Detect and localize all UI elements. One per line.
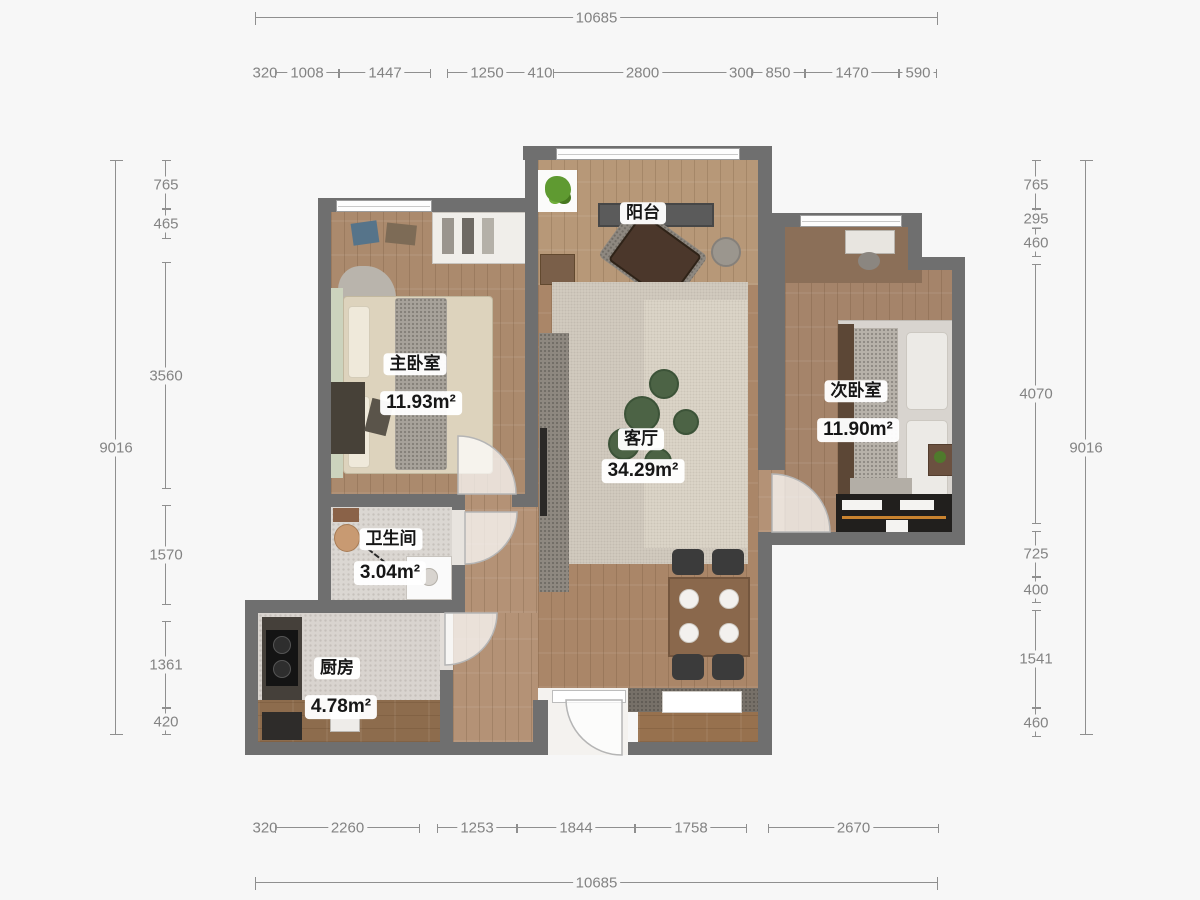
dim-top-segments-value: 1470 xyxy=(832,65,871,82)
master-bedroom-door-arc xyxy=(458,436,516,494)
dim-top-segments-line: 1008 xyxy=(275,72,339,73)
dim-top-segments-tick xyxy=(339,69,340,78)
dim-top-segments-tick xyxy=(447,69,448,78)
dim-left-segments-tick xyxy=(162,262,171,263)
dim-right-segments-tick xyxy=(1032,264,1041,265)
kitchen-door-arc xyxy=(445,613,497,665)
dim-left-segments-value: 1570 xyxy=(146,547,185,564)
kitchen-area: 4.78m² xyxy=(305,695,377,719)
second-bedroom-area: 11.90m² xyxy=(817,418,899,442)
dim-left-segments-line: 465 xyxy=(165,209,166,239)
dim-bottom-segments-tick xyxy=(275,824,276,833)
dim-right-segments-tick xyxy=(1032,160,1041,161)
dim-top-segments-line: 1250 xyxy=(447,72,527,73)
dim-left-overall-tick xyxy=(110,160,123,161)
dim-right-segments-tick xyxy=(1032,256,1041,257)
dim-right-segments-value: 460 xyxy=(1020,234,1051,251)
dim-top-segments-value: 1250 xyxy=(467,65,506,82)
dim-right-segments-tick xyxy=(1032,610,1041,611)
kitchen-label: 厨房 xyxy=(314,657,360,679)
dim-bottom-segments-tick xyxy=(938,824,939,833)
dim-bottom-segments-value: 1253 xyxy=(457,820,496,837)
dim-right-segments-line: 460 xyxy=(1035,708,1036,737)
door-swing-overlay xyxy=(0,0,1200,900)
dim-left-segments-tick xyxy=(162,505,171,506)
dim-top-segments-value: 850 xyxy=(762,65,793,82)
dim-top-overall-tick xyxy=(937,12,938,25)
dim-bottom-segments-tick xyxy=(768,824,769,833)
dim-bottom-segments-tick xyxy=(746,824,747,833)
dim-right-segments-value: 1541 xyxy=(1016,651,1055,668)
dim-bottom-segments-line: 1844 xyxy=(517,827,635,828)
dim-top-overall-tick xyxy=(255,12,256,25)
dim-bottom-segments-line: 1758 xyxy=(635,827,747,828)
dim-top-overall-line: 10685 xyxy=(255,17,938,18)
dim-left-segments-value: 3560 xyxy=(146,367,185,384)
second-bedroom-door-arc xyxy=(772,474,830,532)
dim-left-segments-tick xyxy=(162,238,171,239)
dim-right-segments-tick xyxy=(1032,708,1041,709)
dim-bottom-segments-value: 1758 xyxy=(671,820,710,837)
dim-left-segments-line: 3560 xyxy=(165,262,166,489)
dim-left-segments-tick xyxy=(162,488,171,489)
dim-top-segments-tick xyxy=(899,69,900,78)
dim-left-segments-line: 420 xyxy=(165,708,166,735)
dim-right-segments-tick xyxy=(1032,531,1041,532)
dim-right-segments-value: 765 xyxy=(1020,176,1051,193)
bathroom-label: 卫生间 xyxy=(360,528,423,550)
dim-left-overall-tick xyxy=(110,734,123,735)
dim-left-segments-tick xyxy=(162,621,171,622)
bathroom-area: 3.04m² xyxy=(354,561,426,585)
dim-top-segments-tick xyxy=(751,69,752,78)
dim-left-segments-tick xyxy=(162,209,171,210)
dim-left-segments-line: 765 xyxy=(165,160,166,209)
dim-top-segments-value: 1447 xyxy=(365,65,404,82)
dim-bottom-segments-value: 1844 xyxy=(556,820,595,837)
balcony-label: 阳台 xyxy=(620,202,666,224)
dim-bottom-segments-line: 320 xyxy=(255,827,275,828)
dim-top-segments-tick xyxy=(275,69,276,78)
living-room-label: 客厅 xyxy=(618,428,664,450)
dim-bottom-segments-tick xyxy=(517,824,518,833)
dim-top-segments-value: 300 xyxy=(726,65,757,82)
dim-right-overall-tick xyxy=(1080,160,1093,161)
dim-bottom-overall-tick xyxy=(937,877,938,890)
dim-top-segments-tick xyxy=(805,69,806,78)
dim-top-segments-line: 590 xyxy=(899,72,937,73)
dim-top-overall-value: 10685 xyxy=(573,10,621,27)
dim-top-segments-line: 2800 xyxy=(553,72,732,73)
dim-right-segments-value: 460 xyxy=(1020,714,1051,731)
dim-top-segments-line: 320 xyxy=(255,72,275,73)
dim-bottom-segments-tick xyxy=(419,824,420,833)
dim-top-segments-line: 1470 xyxy=(805,72,899,73)
dim-bottom-overall-tick xyxy=(255,877,256,890)
dim-left-segments-line: 1361 xyxy=(165,621,166,708)
dim-top-segments-value: 410 xyxy=(524,65,555,82)
dim-right-segments-line: 765 xyxy=(1035,160,1036,209)
dim-bottom-segments-tick xyxy=(437,824,438,833)
dim-top-segments-tick xyxy=(936,69,937,78)
dim-top-segments-value: 2800 xyxy=(623,65,662,82)
dim-right-segments-line: 460 xyxy=(1035,228,1036,257)
dim-left-segments-tick xyxy=(162,708,171,709)
dim-top-segments-line: 410 xyxy=(527,72,553,73)
dim-left-segments-value: 1361 xyxy=(146,656,185,673)
dim-right-segments-value: 400 xyxy=(1020,582,1051,599)
dim-left-segments-tick xyxy=(162,734,171,735)
dim-right-segments-tick xyxy=(1032,577,1041,578)
dim-left-segments-tick xyxy=(162,160,171,161)
dim-bottom-segments-line: 1253 xyxy=(437,827,517,828)
entrance-door-arc xyxy=(566,700,622,755)
floor-plan-canvas: 阳台 主卧室 11.93m² 客厅 34.29m² 次卧室 11.90m² 卫生… xyxy=(0,0,1200,900)
dim-left-segments-tick xyxy=(162,604,171,605)
master-bedroom-label: 主卧室 xyxy=(384,353,447,375)
dim-right-segments-line: 400 xyxy=(1035,577,1036,603)
dim-right-segments-line: 1541 xyxy=(1035,610,1036,708)
dim-right-segments-tick xyxy=(1032,736,1041,737)
dim-top-segments-value: 590 xyxy=(902,65,933,82)
dim-left-segments-value: 765 xyxy=(150,176,181,193)
dim-bottom-overall-line: 10685 xyxy=(255,882,938,883)
dim-top-segments-tick xyxy=(553,69,554,78)
dim-top-segments-line: 850 xyxy=(751,72,805,73)
dim-right-overall-value: 9016 xyxy=(1066,439,1105,456)
dim-top-segments-value: 1008 xyxy=(287,65,326,82)
bathroom-door-arc xyxy=(465,512,517,564)
dim-left-overall-line: 9016 xyxy=(115,160,116,735)
dim-right-overall-line: 9016 xyxy=(1085,160,1086,735)
dim-left-overall-value: 9016 xyxy=(96,439,135,456)
living-room-area: 34.29m² xyxy=(602,459,685,483)
dim-top-segments-tick xyxy=(430,69,431,78)
dim-right-segments-line: 295 xyxy=(1035,209,1036,228)
dim-right-segments-line: 725 xyxy=(1035,531,1036,577)
dim-bottom-segments-value: 2670 xyxy=(834,820,873,837)
dim-left-segments-value: 465 xyxy=(150,216,181,233)
dim-right-segments-value: 725 xyxy=(1020,546,1051,563)
dim-right-segments-tick xyxy=(1032,228,1041,229)
dim-right-segments-value: 4070 xyxy=(1016,386,1055,403)
dim-right-segments-tick xyxy=(1032,523,1041,524)
dim-right-overall-tick xyxy=(1080,734,1093,735)
dim-top-segments-line: 1447 xyxy=(339,72,431,73)
dim-bottom-segments-tick xyxy=(635,824,636,833)
dim-left-segments-line: 1570 xyxy=(165,505,166,605)
second-bedroom-label: 次卧室 xyxy=(825,380,888,402)
dim-bottom-segments-line: 2670 xyxy=(768,827,939,828)
dim-right-segments-value: 295 xyxy=(1020,210,1051,227)
dim-bottom-overall-value: 10685 xyxy=(573,875,621,892)
master-bedroom-area: 11.93m² xyxy=(380,391,462,415)
dim-bottom-segments-value: 2260 xyxy=(328,820,367,837)
dim-left-segments-value: 420 xyxy=(150,713,181,730)
dim-top-segments-line: 300 xyxy=(732,72,751,73)
dim-bottom-segments-line: 2260 xyxy=(275,827,420,828)
dim-right-segments-line: 4070 xyxy=(1035,264,1036,524)
dim-right-segments-tick xyxy=(1032,602,1041,603)
